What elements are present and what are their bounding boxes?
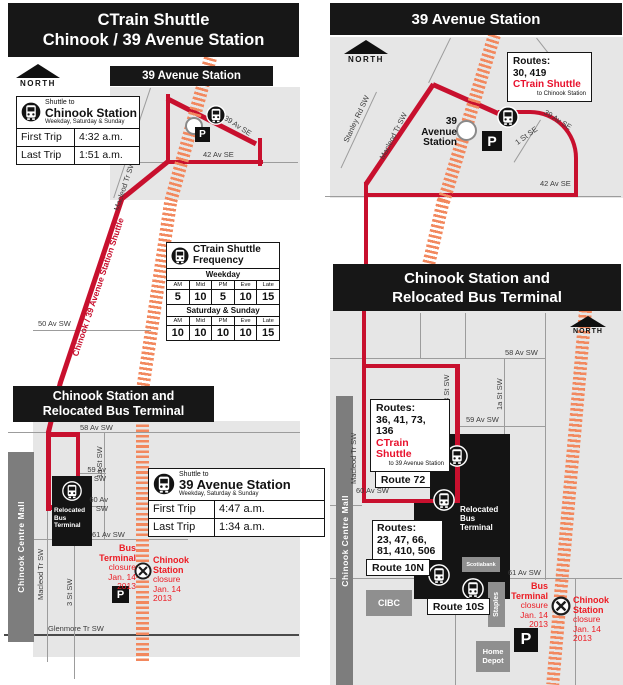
bus-icon bbox=[170, 246, 190, 266]
street-line-v2-right bbox=[465, 313, 466, 359]
street-label-59av-right: 59 Av SW bbox=[466, 416, 499, 425]
frequency-table: CTrain Shuttle Frequency Weekday AMMidPM… bbox=[166, 242, 280, 341]
bus-icon bbox=[433, 489, 455, 511]
shuttle-route-segment bbox=[46, 432, 51, 511]
closure-x-icon bbox=[134, 562, 152, 580]
station-39ave-label: 39 Avenue Station bbox=[413, 117, 457, 149]
bus-icon bbox=[20, 101, 42, 123]
north-triangle-icon bbox=[570, 316, 606, 327]
cell: 10 bbox=[190, 290, 213, 304]
shuttle-chinook-info-box: Shuttle to Chinook Station Weekday, Satu… bbox=[16, 96, 140, 165]
cell: 10 bbox=[167, 326, 190, 340]
routes-label: Routes: bbox=[377, 523, 438, 535]
ctrain-shuttle-label: CTrain Shuttle bbox=[376, 438, 444, 461]
bus-icon bbox=[462, 578, 484, 600]
shuttle-days: Weekday, Saturday & Sunday bbox=[45, 119, 137, 126]
parking-icon: P bbox=[482, 131, 502, 151]
closure-detail: closure Jan. 14 2013 bbox=[573, 614, 601, 643]
table-row: Last Trip1:34 a.m. bbox=[149, 518, 324, 536]
street-label-macleod-v-left: Macleod Tr SW bbox=[37, 540, 46, 600]
street-line-macleod-v-left bbox=[47, 510, 48, 662]
shuttle-route-segment bbox=[362, 309, 367, 503]
table-row: 1010101015 bbox=[167, 325, 279, 340]
shuttle-39ave-info-box: Shuttle to 39 Avenue Station Weekday, Sa… bbox=[148, 468, 325, 537]
shuttle-destination: Chinook Station bbox=[45, 107, 137, 120]
table-row: 51051015 bbox=[167, 289, 279, 304]
closure-title: Bus Terminal bbox=[88, 544, 136, 563]
store-home-depot: Home Depot bbox=[476, 641, 510, 672]
bus-icon bbox=[497, 106, 519, 128]
bus-terminal-closure-note: Bus Terminalclosure Jan. 14 2013 bbox=[503, 582, 548, 630]
col-header: Late bbox=[257, 281, 279, 289]
street-line-50av bbox=[33, 330, 151, 331]
street-label-macleod-v-right: Macleod Tr SW bbox=[350, 420, 359, 484]
bus-icon bbox=[206, 105, 226, 125]
closure-detail: closure Jan. 14 2013 bbox=[520, 600, 548, 629]
chinook-station-closure-note: Chinook Stationclosure Jan. 14 2013 bbox=[573, 596, 623, 644]
street-line-v3-right bbox=[545, 313, 546, 580]
first-trip-label: First Trip bbox=[17, 129, 75, 146]
street-label-glenmore: Glenmore Tr SW bbox=[48, 625, 104, 634]
routes-numbers: 30, 419 bbox=[513, 68, 586, 80]
col-header: Mid bbox=[190, 281, 213, 289]
routes-numbers: 23, 47, 66, 81, 410, 506 bbox=[377, 535, 438, 558]
first-trip-label: First Trip bbox=[149, 501, 215, 518]
closure-x-icon bbox=[551, 596, 571, 616]
col-header: Mid bbox=[190, 317, 213, 325]
cell: 5 bbox=[167, 290, 190, 304]
mall-label: Chinook Centre Mall bbox=[340, 495, 350, 587]
table-row: AMMidPMEveLate bbox=[167, 280, 279, 289]
frequency-title: CTrain Shuttle Frequency bbox=[193, 245, 261, 266]
street-label-42av-left: 42 Av SE bbox=[203, 151, 234, 160]
first-trip-time: 4:47 a.m. bbox=[215, 501, 269, 518]
shuttle-box-header: Shuttle to 39 Avenue Station Weekday, Sa… bbox=[149, 469, 324, 500]
store-scotiabank: Scotiabank bbox=[462, 557, 500, 572]
street-label-50av: 50 Av SW bbox=[38, 320, 71, 329]
table-row: Last Trip1:51 a.m. bbox=[17, 146, 139, 164]
bus-icon bbox=[428, 564, 450, 586]
weekday-band: Weekday bbox=[167, 268, 279, 280]
north-triangle-icon bbox=[344, 40, 388, 54]
col-header: Eve bbox=[235, 317, 258, 325]
store-cibc: CIBC bbox=[366, 590, 412, 616]
cell: 10 bbox=[190, 326, 213, 340]
closure-detail: closure Jan. 14 2013 bbox=[108, 562, 136, 591]
route-10n-tag: Route 10N bbox=[366, 559, 430, 576]
left-39ave-station-banner: 39 Avenue Station bbox=[110, 66, 273, 86]
last-trip-label: Last Trip bbox=[149, 519, 215, 536]
north-arrow-icon: NORTH bbox=[16, 64, 60, 88]
last-trip-time: 1:34 a.m. bbox=[215, 519, 269, 536]
weekend-band: Saturday & Sunday bbox=[167, 304, 279, 316]
street-label-58av-left: 58 Av SW bbox=[80, 424, 113, 433]
street-label-58av-right: 58 Av SW bbox=[505, 349, 538, 358]
street-line-glenmore bbox=[4, 634, 299, 636]
shuttle-destination-note: to 39 Avenue Station bbox=[376, 461, 444, 468]
routes-chinook-box: Routes: 36, 41, 73, 136 CTrain Shuttle t… bbox=[370, 399, 450, 472]
bus-icon bbox=[62, 481, 82, 501]
cell: 10 bbox=[235, 326, 258, 340]
closure-title: Chinook Station bbox=[153, 556, 213, 575]
street-label-60av-left: 60 Av SW bbox=[86, 496, 108, 513]
parking-icon: P bbox=[195, 127, 210, 142]
cell: 15 bbox=[257, 290, 279, 304]
ctrain-line-segment bbox=[136, 388, 149, 662]
routes-label: Routes: bbox=[376, 403, 444, 415]
parking-icon: P bbox=[514, 628, 538, 652]
mall-label: Chinook Centre Mall bbox=[16, 501, 26, 593]
shuttle-destination-note: to Chinook Station bbox=[513, 91, 586, 98]
routes-39ave-box: Routes: 30, 419 CTrain Shuttle to Chinoo… bbox=[507, 52, 592, 102]
chinook-station-closure-note: Chinook Stationclosure Jan. 14 2013 bbox=[153, 556, 213, 604]
closure-detail: closure Jan. 14 2013 bbox=[153, 574, 181, 603]
right-chinook-banner: Chinook Station and Relocated Bus Termin… bbox=[333, 264, 621, 311]
col-header: PM bbox=[212, 281, 235, 289]
left-chinook-banner: Chinook Station and Relocated Bus Termin… bbox=[13, 386, 214, 422]
closure-title: Chinook Station bbox=[573, 596, 623, 615]
col-header: AM bbox=[167, 281, 190, 289]
ctrain-shuttle-label: CTrain Shuttle bbox=[513, 79, 586, 91]
street-line-59av-right bbox=[458, 426, 545, 427]
street-label-42av-right: 42 Av SE bbox=[540, 180, 571, 189]
col-header: Eve bbox=[235, 281, 258, 289]
routes-numbers: 36, 41, 73, 136 bbox=[376, 415, 444, 438]
north-label: NORTH bbox=[20, 79, 56, 88]
bus-terminal-closure-note: Bus Terminalclosure Jan. 14 2013 bbox=[88, 544, 136, 592]
north-label: NORTH bbox=[573, 328, 603, 335]
route-10s-tag: Route 10S bbox=[427, 598, 490, 615]
col-header: AM bbox=[167, 317, 190, 325]
street-label-3st-left: 3 St SW bbox=[66, 560, 75, 606]
cell: 5 bbox=[212, 290, 235, 304]
north-arrow-icon: NORTH bbox=[344, 40, 388, 64]
store-staples-label: Staples bbox=[493, 592, 500, 617]
ctrain-line-segment bbox=[422, 199, 449, 265]
table-row: First Trip4:47 a.m. bbox=[149, 500, 324, 518]
left-map-title: CTrain Shuttle Chinook / 39 Avenue Stati… bbox=[8, 3, 299, 57]
street-label-3st-right: 3 St SW bbox=[443, 366, 452, 402]
shuttle-route-segment bbox=[76, 432, 81, 480]
street-label-61av-left: 61 Av SW bbox=[92, 531, 125, 540]
north-triangle-icon bbox=[16, 64, 60, 78]
street-line-v1-right bbox=[420, 313, 421, 359]
shuttle-route-segment bbox=[366, 193, 578, 198]
closure-title: Bus Terminal bbox=[503, 582, 548, 601]
cell: 15 bbox=[257, 326, 279, 340]
chinook-centre-mall-left: Chinook Centre Mall bbox=[8, 452, 34, 642]
first-trip-time: 4:32 a.m. bbox=[75, 129, 127, 146]
north-arrow-icon: NORTH bbox=[570, 316, 606, 335]
routes-label: Routes: bbox=[513, 56, 586, 68]
route-72-tag: Route 72 bbox=[375, 471, 431, 488]
last-trip-label: Last Trip bbox=[17, 147, 75, 164]
transit-map-page: Chinook Centre Mall Chinook Centre Mall … bbox=[0, 0, 623, 685]
shuttle-box-header: Shuttle to Chinook Station Weekday, Satu… bbox=[17, 97, 139, 128]
col-header: PM bbox=[212, 317, 235, 325]
street-label-61av-right: 61 Av SW bbox=[508, 569, 541, 578]
bus-icon bbox=[152, 472, 176, 496]
station-circle-icon bbox=[456, 120, 477, 141]
frequency-header: CTrain Shuttle Frequency bbox=[167, 243, 279, 268]
cell: 10 bbox=[235, 290, 258, 304]
north-label: NORTH bbox=[348, 55, 384, 64]
col-header: Late bbox=[257, 317, 279, 325]
relocated-terminal-label-right: Relocated Bus Terminal bbox=[460, 505, 498, 532]
routes-mid-box: Routes: 23, 47, 66, 81, 410, 506 bbox=[372, 520, 443, 561]
table-row: First Trip4:32 a.m. bbox=[17, 128, 139, 146]
street-label-60av-right: 60 Av SW bbox=[356, 487, 389, 496]
cell: 10 bbox=[212, 326, 235, 340]
shuttle-days: Weekday, Saturday & Sunday bbox=[179, 491, 291, 498]
shuttle-route-segment bbox=[166, 94, 171, 164]
relocated-terminal-label-left: Relocated Bus Terminal bbox=[54, 507, 85, 530]
table-row: AMMidPMEveLate bbox=[167, 316, 279, 325]
street-label-1ast-right: 1a St SW bbox=[496, 368, 505, 410]
shuttle-destination: 39 Avenue Station bbox=[179, 479, 291, 492]
shuttle-route-label: Chinook / 39 Avenue Station Shuttle bbox=[62, 191, 135, 384]
right-map-title: 39 Avenue Station bbox=[330, 3, 622, 35]
shuttle-route-segment bbox=[455, 364, 460, 504]
street-label-59av-left: 59 Av SW bbox=[84, 466, 106, 483]
last-trip-time: 1:51 a.m. bbox=[75, 147, 127, 164]
